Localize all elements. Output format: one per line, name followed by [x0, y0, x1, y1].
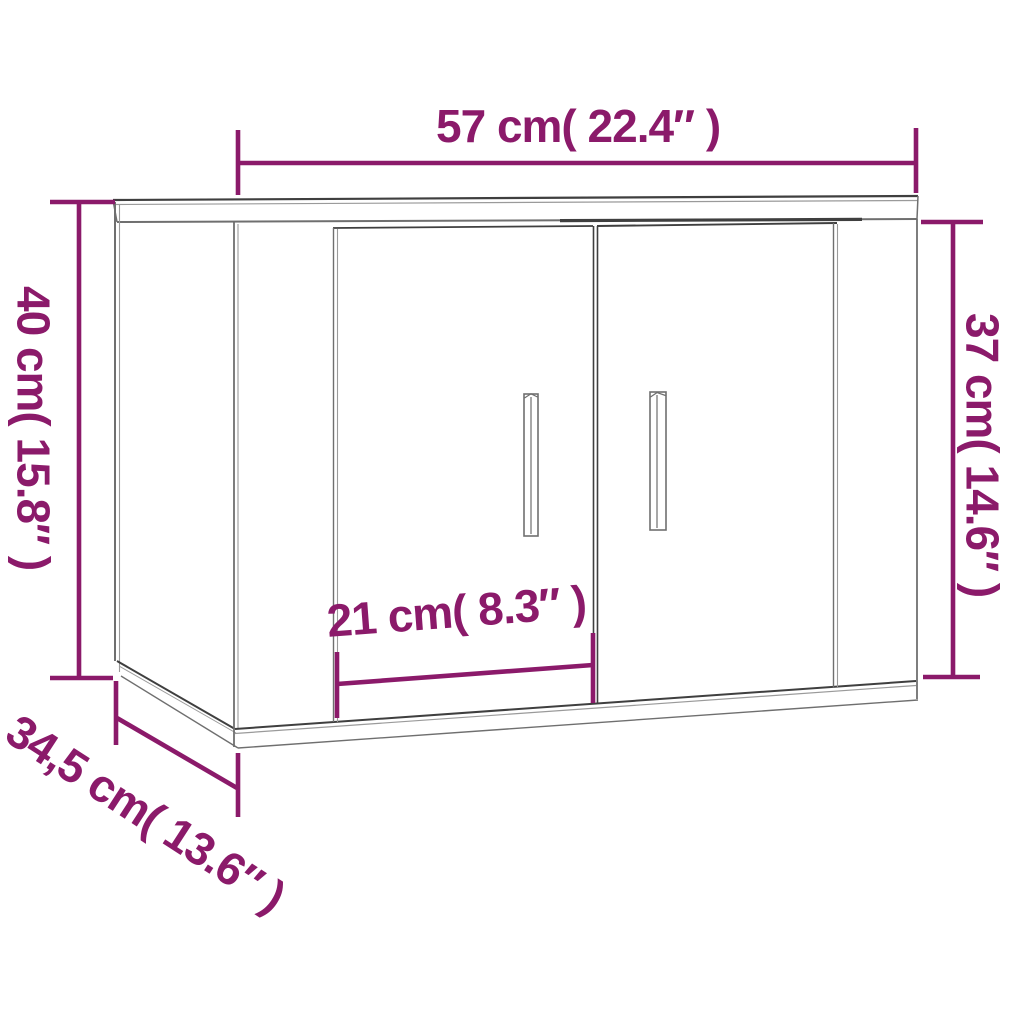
height-front-dimension-label: 37 cm( 14.6″ ): [957, 313, 1008, 597]
cabinet-side-bottom-edge: [117, 661, 235, 729]
right-handle-body: [650, 392, 666, 530]
cabinet-drawing: [0, 0, 1024, 1024]
left-door-handle: [524, 394, 538, 536]
dimension-diagram: 57 cm( 22.4″ ) 40 cm( 15.8″ ) 37 cm( 14.…: [0, 0, 1024, 1024]
width-dimension-label: 57 cm( 22.4″ ): [436, 101, 720, 152]
right-door-top-edge: [597, 223, 837, 226]
door-width-line: [337, 665, 593, 684]
cabinet-side-bottom-lower-edge: [121, 676, 238, 748]
right-door: [597, 223, 838, 704]
height-total-dimension-label: 40 cm( 15.8″ ): [8, 286, 59, 570]
height-total-dimension-line: [50, 202, 115, 678]
cabinet-top-front-edge-shadow: [560, 219, 862, 220]
cabinet-top-right-end: [917, 196, 918, 219]
left-door: [333, 226, 594, 722]
cabinet-bottom-lower-edge: [238, 700, 918, 748]
cabinet-top-back-edge: [113, 196, 918, 200]
door-width-dimension-line: [337, 633, 593, 718]
cabinet-outline: [113, 196, 918, 748]
right-door-handle: [650, 392, 666, 530]
left-door-top-edge: [333, 226, 593, 228]
cabinet-top-back-edge-inner: [113, 201, 918, 205]
cabinet-side-bottom-edge-inner: [119, 666, 236, 733]
